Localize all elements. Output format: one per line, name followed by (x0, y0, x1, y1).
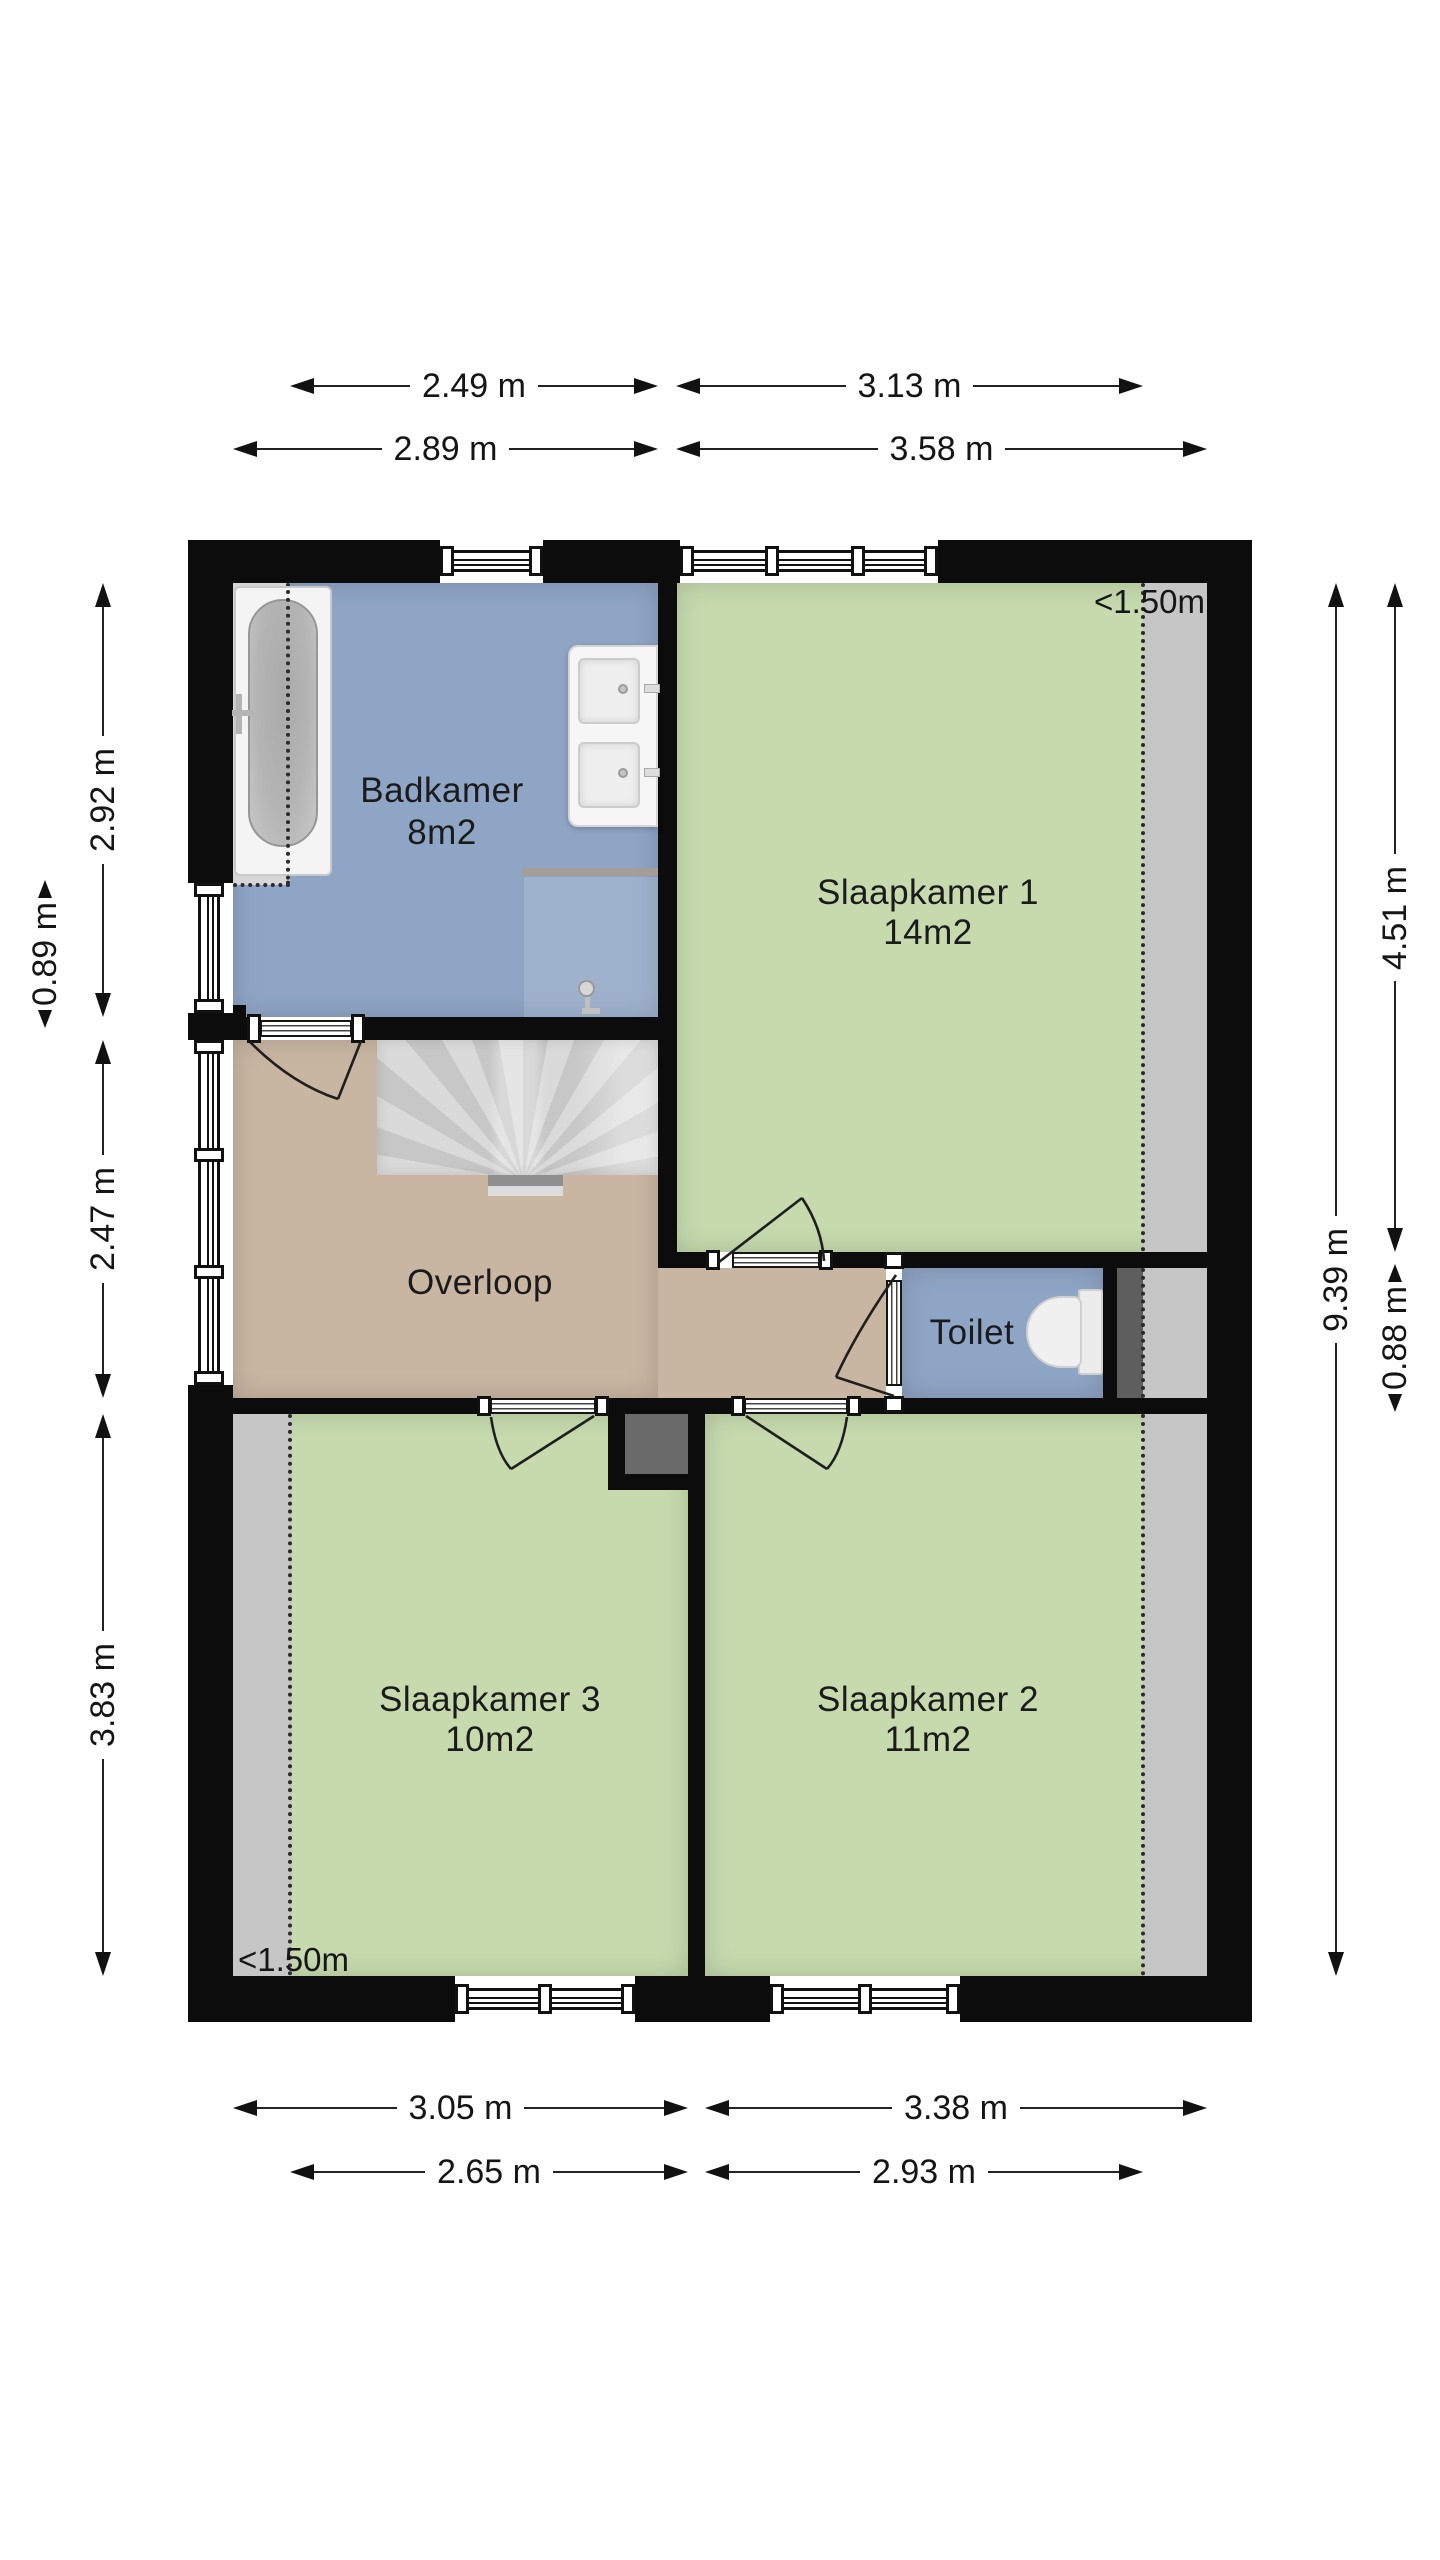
stairs (377, 1040, 658, 1175)
door-post (477, 1396, 491, 1416)
stairs-entry-step-dark (488, 1175, 563, 1186)
headroom-label-bottom-left: <1.50m (238, 1941, 349, 1979)
shower-mixer-head (578, 980, 595, 997)
wall-bottom-right (960, 1976, 1252, 2022)
headroom-line-slaapkamer2 (1141, 1414, 1145, 1976)
toilet-low-headroom-strip (1143, 1268, 1207, 1398)
door-badkamer (260, 1020, 352, 1037)
dim-bottom-outer-left: 2.65 m (290, 2154, 688, 2190)
dim-right-slaapkamer1: 4.51 m (1377, 583, 1413, 1252)
toilet-dark-zone (1117, 1268, 1143, 1398)
door-post (819, 1250, 833, 1270)
window-overloop-left (188, 1040, 233, 1385)
floorplan-canvas: Badkamer 8m2 Slaapkamer 1 14m2 Overloop … (0, 0, 1440, 2560)
slaapkamer1-area: 14m2 (883, 913, 973, 953)
window-glass (198, 884, 220, 1012)
door-post (595, 1396, 609, 1416)
wall-sk1-bottom-b (832, 1252, 888, 1268)
window-badkamer-left (188, 883, 233, 1013)
dim-right-total: 9.39 m (1318, 583, 1354, 1976)
door-post (847, 1396, 861, 1416)
dim-left-slaapkamer3: 3.83 m (85, 1414, 121, 1976)
door-post (884, 1396, 904, 1413)
washbasin-2-tap (644, 768, 660, 777)
washbasin-2-drain (618, 768, 628, 778)
headroom-line-badkamer-bottom (233, 883, 290, 887)
dim-bottom-inner-right: 3.38 m (705, 2090, 1207, 2126)
washbasin-1-drain (618, 684, 628, 694)
shower-screen (522, 868, 658, 876)
dim-left-window: 0.89 m (27, 880, 63, 1020)
headroom-label-top-right: <1.50m (1094, 583, 1205, 621)
slaapkamer1-low-headroom-strip (1143, 583, 1207, 1252)
wall-sk1-bottom-c (902, 1252, 1207, 1268)
wall-bottom-left (188, 1976, 455, 2022)
wall-right (1207, 540, 1252, 2022)
wall-bottom-mid (635, 1976, 770, 2022)
dim-bottom-inner-left: 3.05 m (233, 2090, 688, 2126)
headroom-line-slaapkamer3 (288, 1414, 292, 1976)
washbasin-1-tap (644, 684, 660, 693)
slaapkamer2-label: Slaapkamer 2 (817, 1680, 1039, 1720)
slaapkamer2-area: 11m2 (885, 1720, 972, 1760)
window-glass (681, 550, 937, 572)
badkamer-label: Badkamer (360, 771, 524, 811)
bathtub-faucet-handle (232, 710, 254, 716)
wall-top-mid (543, 540, 680, 583)
dim-left-overloop: 2.47 m (85, 1040, 121, 1398)
headroom-line-over-tub (286, 590, 290, 880)
slaapkamer2-low-headroom-strip (1143, 1414, 1207, 1976)
bathtub-basin (248, 599, 318, 847)
dim-top-outer-right: 3.58 m (676, 431, 1207, 467)
window-glass (441, 550, 542, 572)
slaapkamer1-label: Slaapkamer 1 (817, 873, 1039, 913)
door-post (247, 1014, 261, 1043)
wall-bedrooms-a (233, 1398, 478, 1414)
door-slaapkamer3 (490, 1398, 596, 1414)
door-slaapkamer2 (744, 1398, 848, 1414)
shower-zone (524, 877, 658, 1017)
washbasin-1 (578, 658, 640, 724)
wall-bedrooms-c (860, 1398, 1207, 1414)
door-post (731, 1396, 745, 1416)
door-slaapkamer1 (732, 1252, 820, 1268)
wall-badkamer-overloop-b (365, 1017, 658, 1040)
overloop-corridor-floor (658, 1268, 888, 1398)
dim-right-toilet: 0.88 m (1377, 1264, 1413, 1404)
shaft-inner (625, 1414, 688, 1474)
dim-top-inner-right: 3.13 m (676, 368, 1143, 404)
slaapkamer3-area: 10m2 (445, 1720, 535, 1760)
wall-badkamer-overloop-a (233, 1017, 247, 1040)
door-post (351, 1014, 365, 1043)
dim-top-outer-left: 2.89 m (233, 431, 658, 467)
door-post (706, 1250, 720, 1270)
dim-bottom-outer-right: 2.93 m (705, 2154, 1143, 2190)
door-toilet (886, 1280, 902, 1386)
toilet-label: Toilet (930, 1313, 1015, 1353)
window-slaapkamer3-bottom (455, 1976, 635, 2022)
stairs-entry-step-light (488, 1186, 563, 1196)
door-post (884, 1252, 904, 1269)
dim-left-badkamer: 2.92 m (85, 583, 121, 1017)
headroom-line-toilet-zone (1141, 1268, 1145, 1398)
badkamer-area: 8m2 (407, 813, 477, 853)
shower-mixer-base (582, 1008, 600, 1014)
wall-left-upper (188, 540, 233, 883)
overloop-label: Overloop (407, 1263, 553, 1303)
window-badkamer-top (440, 540, 543, 583)
wall-top-right (938, 540, 1252, 583)
wall-left-lower (188, 1385, 233, 2022)
wall-divider-sk2-sk3 (688, 1490, 705, 1976)
window-slaapkamer1-top (680, 540, 938, 583)
slaapkamer3-low-headroom-strip (233, 1414, 292, 1976)
headroom-line-slaapkamer1 (1141, 583, 1145, 1252)
washbasin-2 (578, 742, 640, 808)
window-glass (198, 1041, 220, 1384)
slaapkamer3-label: Slaapkamer 3 (379, 1680, 601, 1720)
wall-toilet-right (1103, 1268, 1117, 1398)
wall-divider-badkamer-sk1 (658, 583, 677, 1268)
dim-top-inner-left: 2.49 m (290, 368, 658, 404)
window-slaapkamer2-bottom (770, 1976, 960, 2022)
